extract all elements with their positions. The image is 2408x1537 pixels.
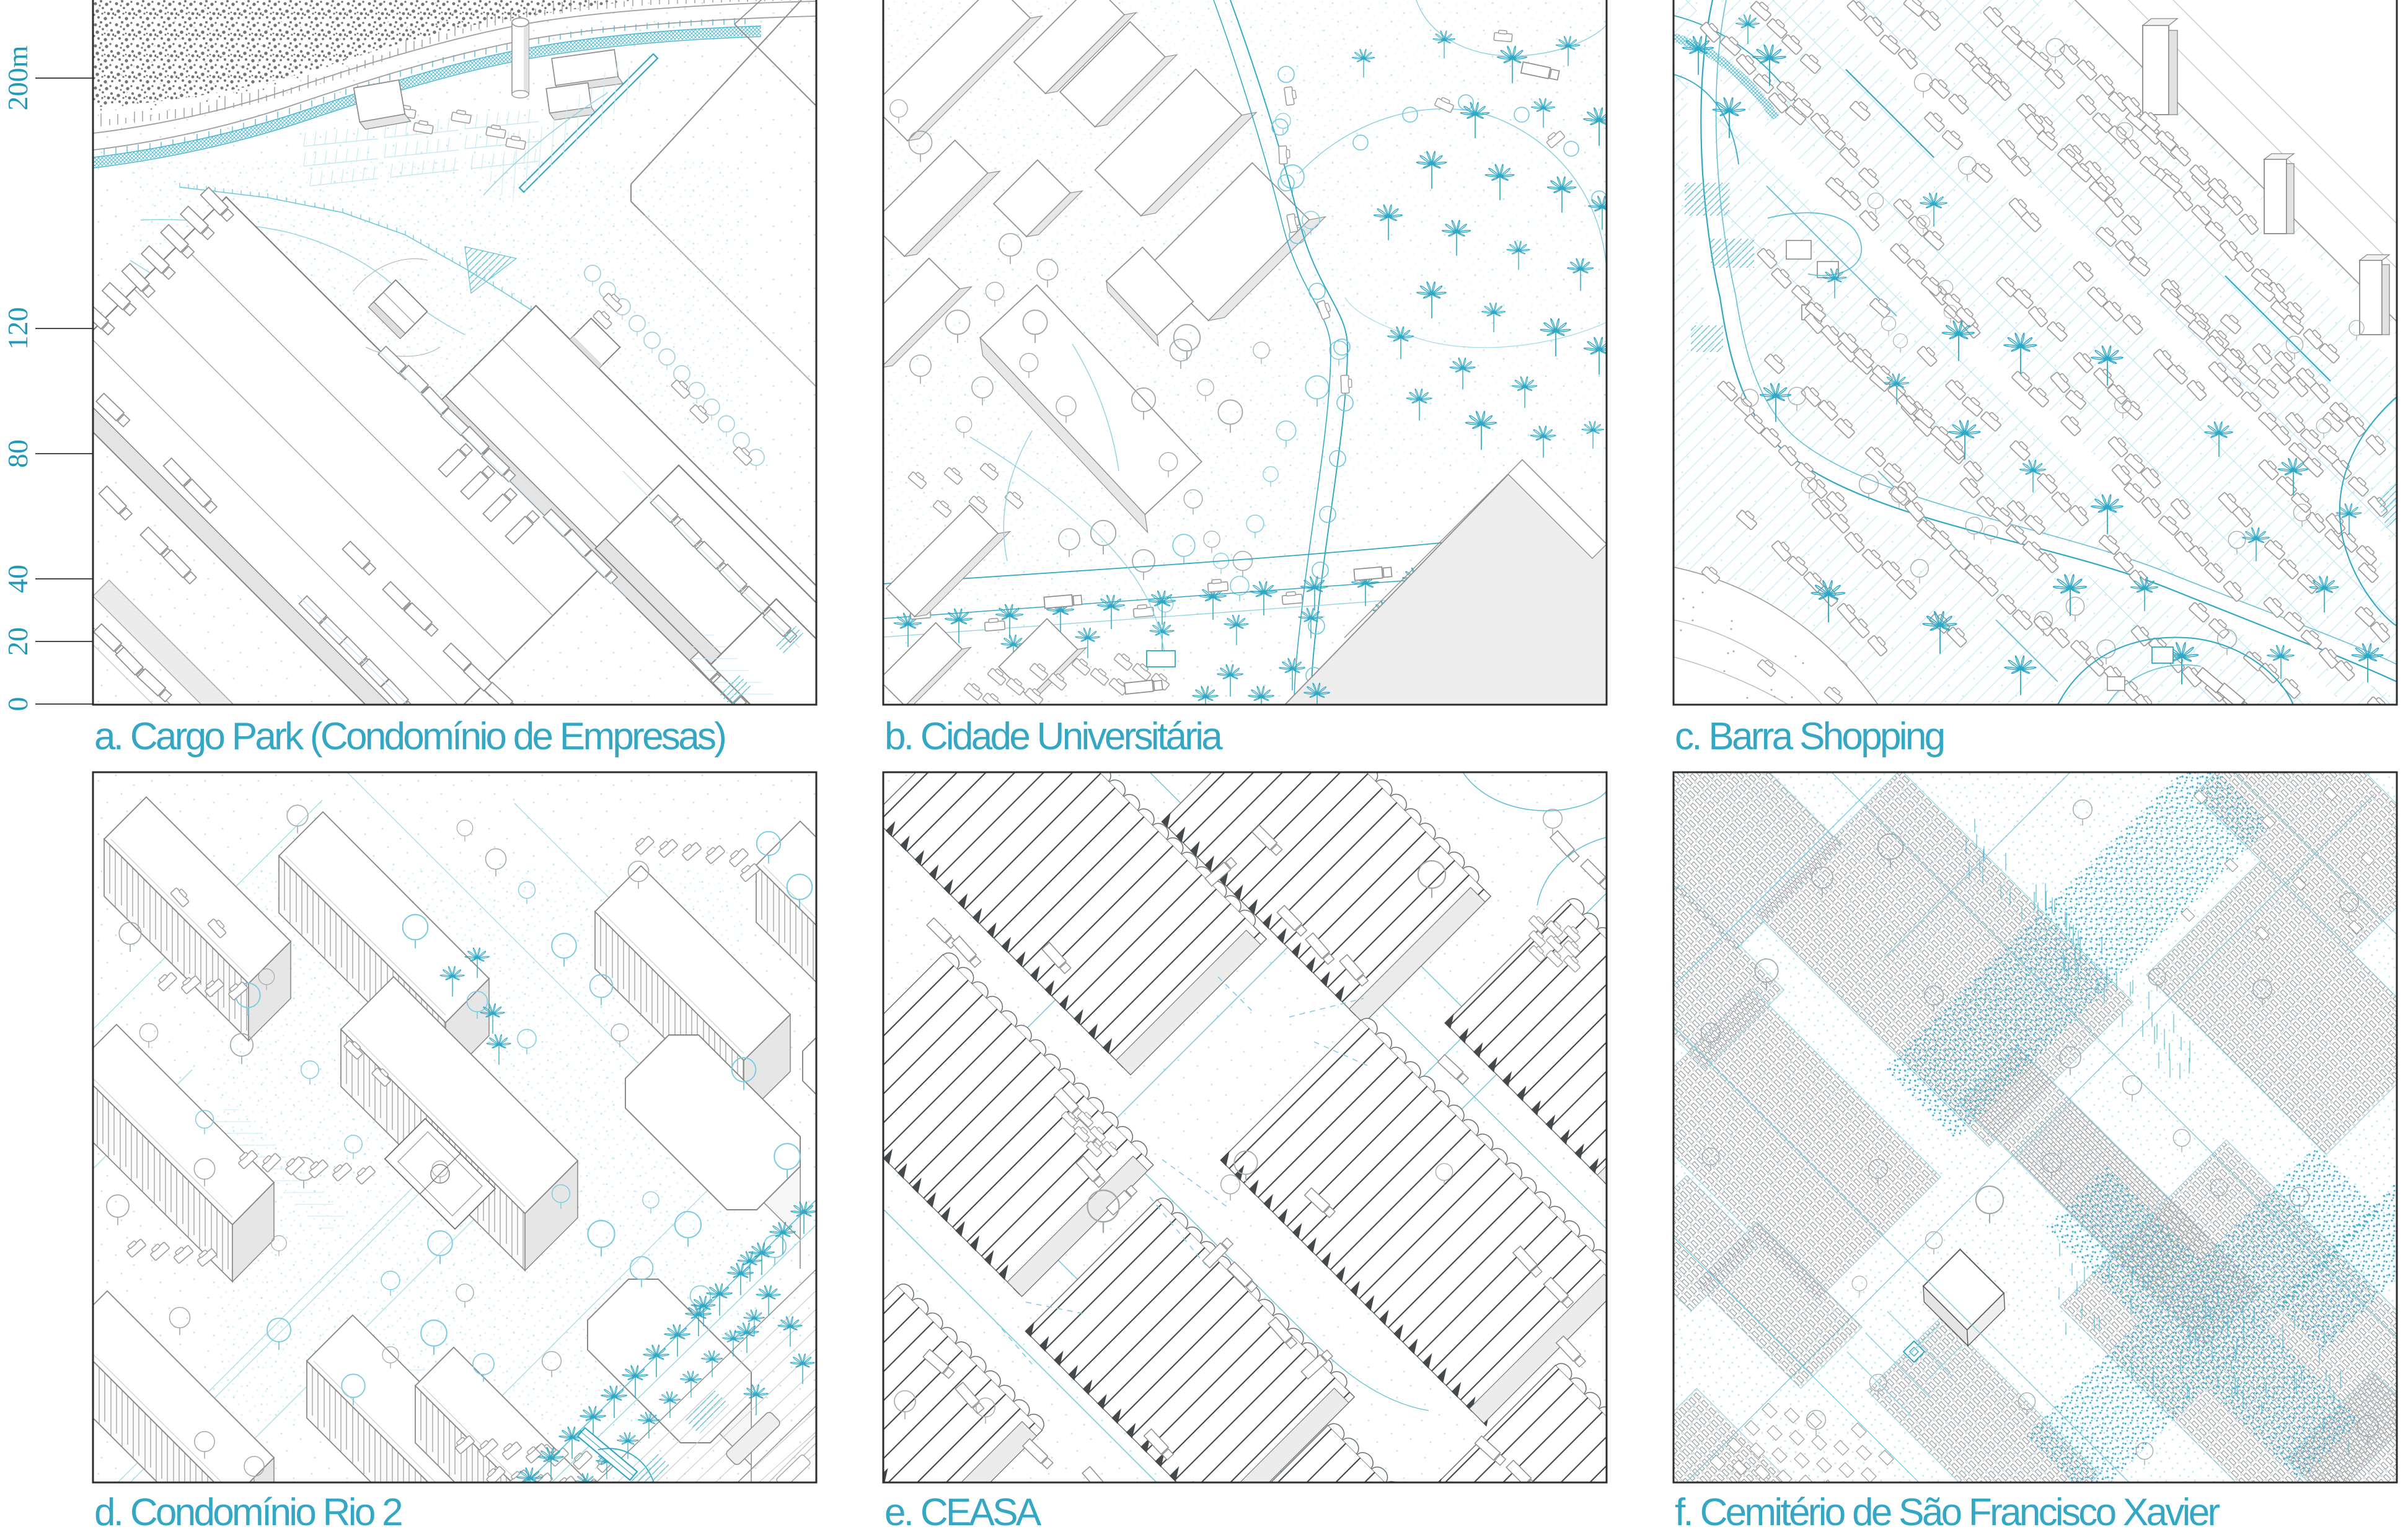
svg-text:0: 0 — [2, 697, 33, 711]
svg-text:40: 40 — [2, 565, 33, 593]
svg-text:120: 120 — [2, 307, 33, 350]
svg-text:e. CEASA: e. CEASA — [884, 1491, 1042, 1534]
svg-text:200m: 200m — [2, 45, 33, 110]
svg-text:80: 80 — [2, 439, 33, 468]
svg-text:20: 20 — [2, 627, 33, 656]
svg-text:b. Cidade Universitária: b. Cidade Universitária — [884, 715, 1223, 758]
svg-text:d. Condomínio Rio 2: d. Condomínio Rio 2 — [94, 1491, 402, 1534]
svg-text:f. Cemitério de São Francisco: f. Cemitério de São Francisco Xavier — [1675, 1491, 2220, 1534]
svg-text:a. Cargo Park (Condomínio de E: a. Cargo Park (Condomínio de Empresas) — [94, 715, 725, 758]
svg-text:c. Barra Shopping: c. Barra Shopping — [1675, 715, 1944, 758]
